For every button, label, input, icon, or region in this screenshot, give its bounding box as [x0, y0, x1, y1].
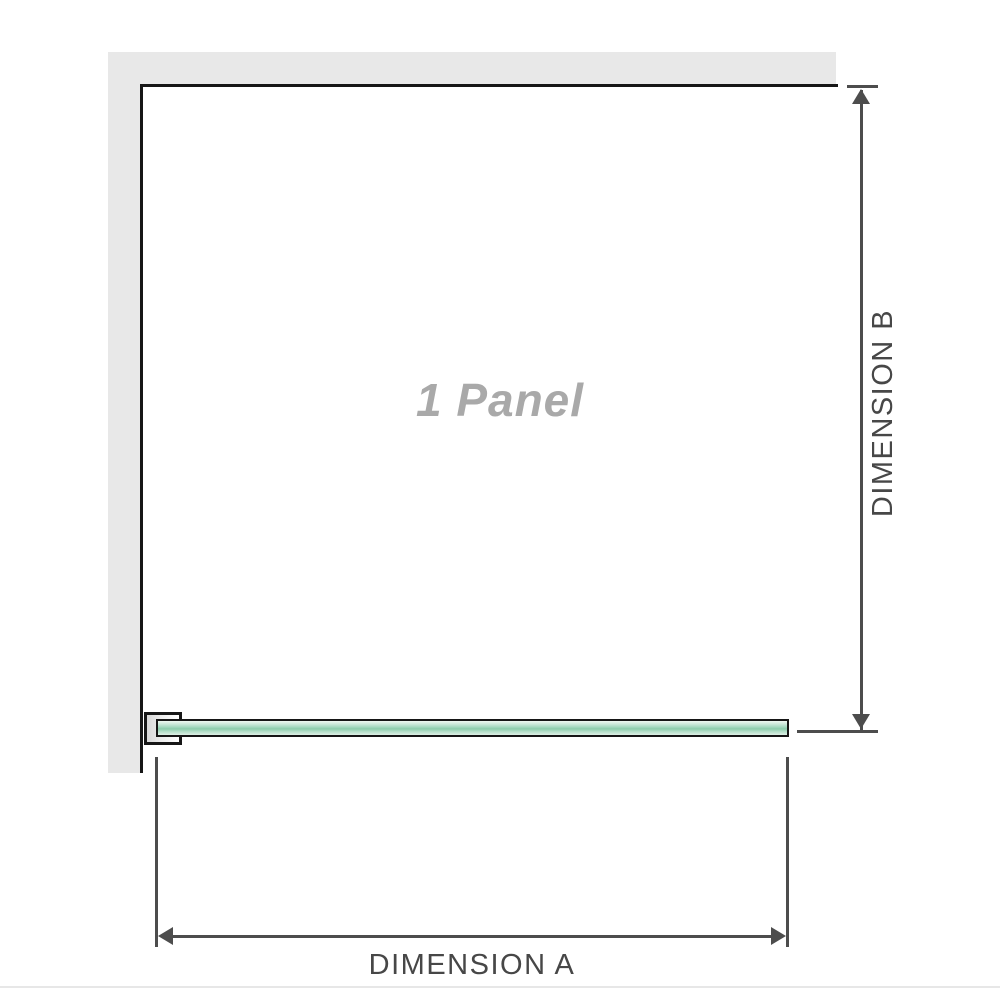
bottom-divider [0, 986, 1000, 988]
dimension-a-extension-right [786, 757, 789, 947]
glass-panel [156, 719, 789, 737]
arrow-left-icon [158, 927, 173, 945]
arrow-right-icon [771, 927, 786, 945]
dimension-b-label: DIMENSION B [862, 88, 904, 738]
shower-panel-dimension-diagram: 1 Panel DIMENSION B DIMENSION A [0, 0, 1000, 1000]
panel-label: 1 Panel [300, 372, 700, 428]
dimension-a-extension-left [155, 757, 158, 947]
dimension-a-line [162, 935, 782, 938]
wall-top [108, 52, 836, 84]
wall-left [108, 52, 140, 773]
dimension-a-label: DIMENSION A [172, 948, 772, 982]
